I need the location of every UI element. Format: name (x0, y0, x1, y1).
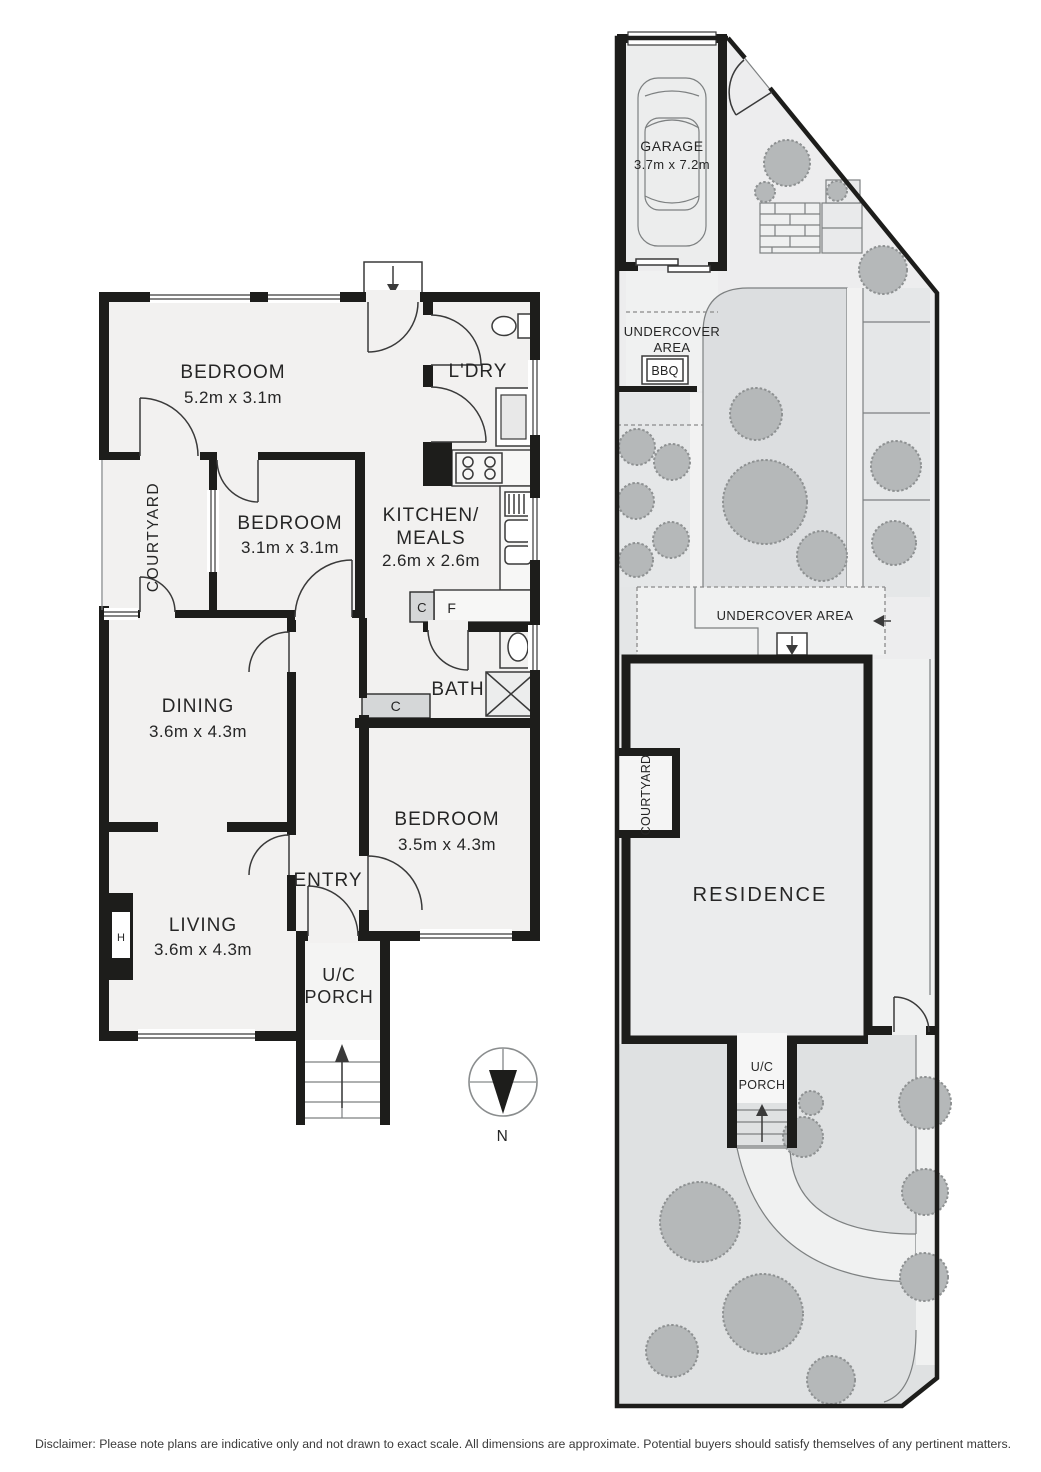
bbq-label: BBQ (651, 364, 678, 378)
garden-path (847, 288, 863, 597)
window (268, 290, 340, 303)
shrub-icon (618, 483, 654, 519)
undercover-top-label-1: UNDERCOVER (624, 324, 720, 339)
site-courtyard: COURTYARD (617, 748, 678, 838)
bath-label: BATH (431, 679, 484, 700)
tree-icon (807, 1356, 855, 1404)
tree-icon (723, 1274, 803, 1354)
site-porch-label-1: U/C (751, 1060, 773, 1074)
living-dims: 3.6m x 4.3m (154, 940, 252, 959)
cupboard-kitchen-label: C (417, 600, 427, 615)
kitchen-label-2: MEALS (396, 528, 465, 549)
tree-icon (660, 1182, 740, 1262)
tree-icon (723, 460, 807, 544)
window (420, 929, 512, 942)
bedroom3-label: BEDROOM (394, 809, 499, 830)
site-porch-label-2: PORCH (739, 1078, 786, 1092)
shrub-icon (653, 522, 689, 558)
courtyard-label: COURTYARD (145, 482, 162, 592)
porch-label-1: U/C (322, 965, 355, 985)
window (138, 1029, 255, 1042)
shrub-icon (619, 429, 655, 465)
laundry-label: L'DRY (449, 361, 508, 382)
garage-label: GARAGE (640, 138, 704, 154)
tree-icon (902, 1169, 948, 1215)
brick-paving (760, 203, 820, 253)
porch-label-2: PORCH (304, 987, 373, 1007)
compass-icon: N (469, 1048, 537, 1145)
undercover-area-mid: UNDERCOVER AREA (617, 587, 891, 655)
cupboard-hall-label: C (391, 698, 402, 714)
house-floor-plan: BEDROOM 5.2m x 3.1m L'DRY COURTYARD BEDR… (99, 262, 541, 1125)
tree-icon (899, 1077, 951, 1129)
up-arrow-icon (335, 1044, 349, 1062)
residence-label: RESIDENCE (693, 884, 828, 906)
tree-icon (872, 521, 916, 565)
site-courtyard-label: COURTYARD (639, 755, 653, 836)
kitchen-label-1: KITCHEN/ (383, 505, 480, 526)
tree-icon (730, 388, 782, 440)
undercover-mid-label: UNDERCOVER AREA (717, 608, 854, 623)
residence-back-door (777, 633, 807, 655)
shrub-icon (799, 1091, 823, 1115)
side-path (872, 659, 937, 1040)
tree-icon (797, 531, 847, 581)
garage-dims: 3.7m x 7.2m (634, 157, 710, 172)
tree-icon (646, 1325, 698, 1377)
entry-label: ENTRY (293, 870, 362, 891)
tree-icon (755, 182, 775, 202)
floorplan-page: BEDROOM 5.2m x 3.1m L'DRY COURTYARD BEDR… (0, 0, 1041, 1472)
window (207, 490, 219, 572)
dining-dims: 3.6m x 4.3m (149, 722, 247, 741)
washing-machine-icon (496, 388, 531, 446)
tree-icon (871, 441, 921, 491)
garage: GARAGE 3.7m x 7.2m (617, 32, 727, 272)
tree-icon (900, 1253, 948, 1301)
window (528, 360, 541, 435)
bedroom2-label: BEDROOM (237, 513, 342, 534)
window (528, 625, 541, 670)
shrub-icon (619, 543, 653, 577)
shower-icon (486, 672, 536, 716)
tree-icon (859, 246, 907, 294)
tree-icon (827, 181, 847, 201)
fridge-label: F (447, 600, 456, 616)
bedroom1-label: BEDROOM (180, 362, 285, 383)
garden-path (690, 393, 703, 597)
tree-icon (764, 140, 810, 186)
compass-north-label: N (497, 1128, 510, 1145)
undercover-top-label-2: AREA (653, 340, 690, 355)
floorplan-drawing: BEDROOM 5.2m x 3.1m L'DRY COURTYARD BEDR… (0, 0, 1041, 1472)
shrub-icon (654, 444, 690, 480)
residence: COURTYARD RESIDENCE (617, 659, 868, 1040)
bedroom2-dims: 3.1m x 3.1m (241, 538, 339, 557)
stairs-icon (305, 1044, 380, 1118)
window (104, 608, 138, 620)
site-plan: GARAGE 3.7m x 7.2m UNDERCOVER AREA BBQ U… (617, 32, 951, 1406)
living-label: LIVING (169, 915, 237, 936)
dining-label: DINING (162, 696, 235, 717)
window (150, 290, 250, 303)
heater-label: H (117, 932, 125, 944)
window (528, 498, 541, 560)
bedroom1-dims: 5.2m x 3.1m (184, 388, 282, 407)
kitchen-dims: 2.6m x 2.6m (382, 551, 480, 570)
sink-icon (505, 492, 531, 564)
disclaimer-text: Disclaimer: Please note plans are indica… (35, 1437, 1011, 1451)
bedroom3-dims: 3.5m x 4.3m (398, 835, 496, 854)
